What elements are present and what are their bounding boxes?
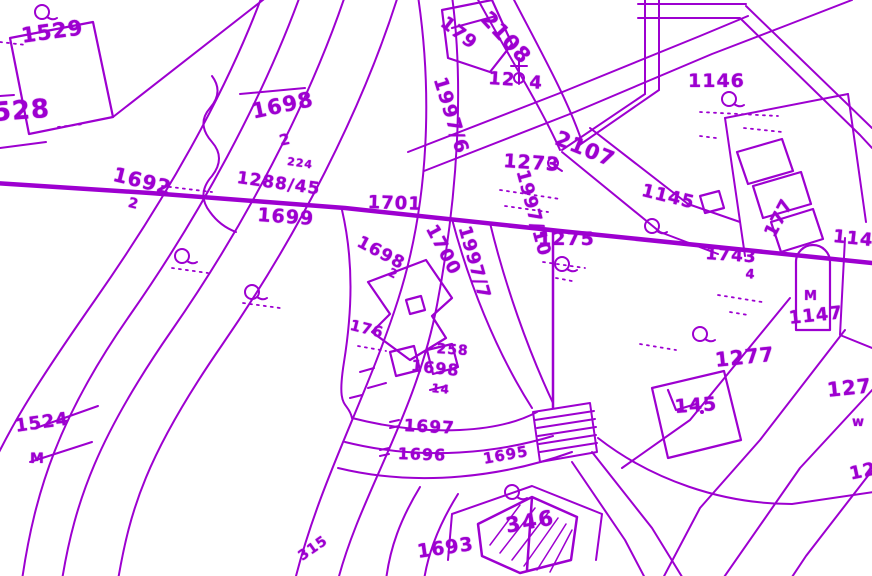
shrine-inner-label: M	[804, 290, 818, 303]
boundary-1529-ray	[113, 0, 268, 117]
parcel-label-1697: 1697	[403, 418, 455, 438]
road-label-1743: 1743	[705, 246, 757, 267]
parcel-label-1278: 1278	[826, 374, 872, 400]
tree-symbol	[175, 249, 197, 263]
house-cluster-sq3	[406, 296, 425, 314]
dots-1743-b	[730, 312, 748, 315]
road-sublabel-1743-4: 4	[745, 268, 756, 282]
dots-1275-a	[543, 262, 585, 268]
tree-symbol	[722, 92, 744, 106]
small-label-224: 224	[286, 156, 313, 171]
tree-symbol	[693, 327, 715, 341]
road-1997-6-west	[295, 0, 426, 576]
dots-1146-b	[744, 128, 782, 132]
bridge-stripes	[535, 411, 597, 452]
building-177-small	[700, 191, 724, 213]
parcel-sublabel-1698-14: 14	[431, 382, 451, 396]
curve-w3	[338, 452, 572, 478]
parcel-sublabel-1524-m: M	[30, 452, 45, 466]
road-junction-2	[512, 0, 582, 142]
cadastral-map: 1529 528 1692 2 1698 2 224 1288/45 1699 …	[0, 0, 872, 576]
boundary-t4	[790, 468, 872, 576]
road-fan-southwest	[0, 0, 458, 576]
boundary-t1	[622, 298, 790, 468]
parcel-label-1696: 1696	[397, 446, 446, 464]
dots-1275-b	[556, 278, 572, 281]
boundary-t3	[722, 388, 872, 576]
parcel-label-1274-right: 4	[529, 74, 544, 93]
parcel-label-1701: 1701	[367, 194, 422, 214]
road-z2	[572, 462, 646, 576]
parcel-label-1146: 1146	[688, 72, 745, 91]
parcel-label-1275: 1275	[538, 230, 595, 249]
parcel-label-12-cut: 12	[848, 460, 872, 483]
boundary-left-b	[0, 142, 46, 148]
parcel-label-258: 258	[436, 342, 469, 358]
parcel-sublabel-1278-w: w	[852, 416, 865, 429]
tree-symbol	[645, 219, 667, 233]
curve-y1	[386, 487, 420, 576]
parcel-label-1277: 1277	[714, 344, 775, 370]
boundary-arc-south	[598, 438, 872, 504]
parcel-label-1273: 1273	[503, 152, 561, 175]
road-z1	[592, 452, 684, 576]
tree-symbol	[35, 5, 57, 19]
dots-tree-a	[172, 268, 208, 273]
boundary-177-quad-c	[725, 118, 745, 256]
parcel-label-1699: 1699	[257, 206, 315, 229]
dots-1743-a	[718, 295, 762, 302]
parcel-label-528: 528	[0, 96, 51, 126]
parcel-left-of-houses	[341, 210, 352, 418]
building-label-145: 145	[674, 395, 718, 417]
stream-wiggle	[203, 76, 236, 232]
boundary-1273-b	[590, 128, 740, 222]
fence-mark-1697	[390, 420, 399, 428]
bridge-hatch	[533, 403, 597, 462]
dots-1146-c	[700, 136, 716, 138]
dots-1277	[640, 344, 676, 350]
parcel-label-1274-left: 12	[488, 70, 516, 90]
